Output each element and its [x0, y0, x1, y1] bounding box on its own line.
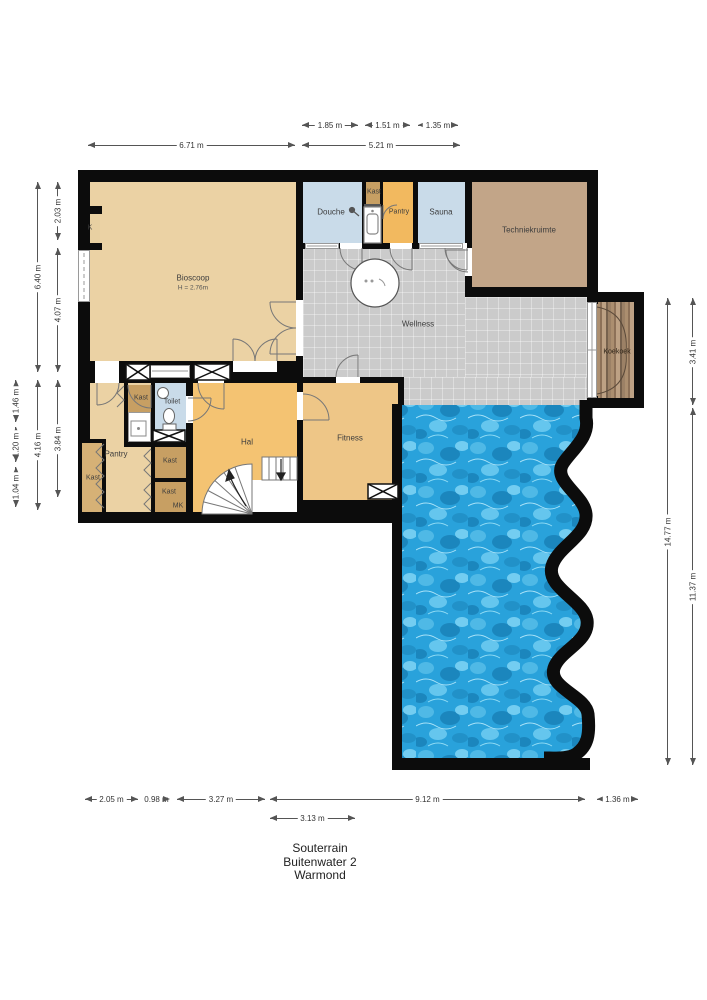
xbox-bioscoop-right	[194, 364, 230, 380]
dim-bottom-0-98: 0.98 m	[143, 799, 170, 800]
xbox-vanity	[153, 430, 185, 442]
label-hal: Hal	[241, 438, 253, 447]
label-kast-mid: Kast	[134, 394, 148, 403]
toilet-bowl	[164, 409, 175, 424]
label-toilet: Toilet	[164, 398, 180, 407]
label-pantry-left: Pantry	[104, 450, 127, 459]
title-city: Warmond	[230, 869, 410, 883]
dim-top-6-71: 6.71 m	[88, 145, 295, 146]
title-address: Buitenwater 2	[230, 856, 410, 870]
title-floor: Souterrain	[230, 842, 410, 856]
dim-right-14-77: 14.77 m	[667, 298, 668, 765]
label-kast-top: Kast	[367, 188, 381, 197]
sink-unit	[364, 207, 381, 243]
label-koekoek: Koekoek	[603, 348, 630, 357]
title-block: Souterrain Buitenwater 2 Warmond	[230, 842, 410, 883]
label-bioscoop-height: H = 2.76m	[178, 284, 208, 293]
label-techniekruimte: Techniekruimte	[502, 226, 556, 235]
label-bioscoop: Bioscoop	[177, 274, 210, 283]
staircase	[202, 457, 297, 514]
dim-left-6-40: 6.40 m	[37, 182, 38, 372]
label-kast-left: Kast	[86, 474, 100, 483]
label-kast-c1: Kast	[163, 457, 177, 466]
dim-right-3-41: 3.41 m	[692, 298, 693, 405]
dim-right-11-37: 11.37 m	[692, 408, 693, 765]
label-fitness: Fitness	[337, 434, 363, 443]
label-kast-c2: Kast	[162, 488, 176, 497]
dim-left-4-16: 4.16 m	[37, 380, 38, 510]
label-mk: MK	[173, 502, 184, 511]
shower-head	[350, 208, 360, 217]
cabinet-sink	[131, 421, 146, 436]
label-wellness: Wellness	[402, 320, 434, 329]
xbox-bioscoop-left	[126, 364, 150, 380]
dim-top-1-51: 1.51 m	[365, 125, 410, 126]
label-k-closet: K	[88, 224, 93, 233]
dim-left-1-04: 1.04 m	[15, 467, 16, 507]
toilet-fixtures	[158, 388, 177, 431]
label-pantry-top: Pantry	[389, 208, 409, 217]
dim-top-5-21: 5.21 m	[302, 145, 460, 146]
swimming-pool	[392, 400, 590, 770]
floorplan-page: Bioscoop H = 2.76m Douche Kast Pantry Sa…	[0, 0, 707, 1000]
pool-wall-bottom	[392, 758, 590, 770]
folding-door-zigzags	[96, 386, 151, 511]
pool-wall-left	[392, 404, 402, 764]
window-lines	[84, 246, 597, 397]
dim-bottom-3-27: 3.27 m	[177, 799, 265, 800]
label-douche: Douche	[317, 208, 345, 217]
dim-left-3-84: 3.84 m	[57, 380, 58, 497]
whirlpool-tub	[351, 259, 399, 307]
stair-winder	[202, 464, 252, 514]
dim-top-1-85: 1.85 m	[302, 125, 358, 126]
dim-top-1-35: 1.35 m	[418, 125, 458, 126]
dim-left-2-03: 2.03 m	[57, 182, 58, 240]
dim-bottom-1-36: 1.36 m	[597, 799, 638, 800]
label-sauna: Sauna	[429, 208, 452, 217]
dim-bottom-2-05: 2.05 m	[85, 799, 138, 800]
dim-left-1-46: 1.46 m	[15, 380, 16, 422]
dim-left-4-07: 4.07 m	[57, 248, 58, 372]
toilet-tank	[163, 424, 176, 430]
dim-bottom-3-13: 3.13 m	[270, 818, 355, 819]
dim-bottom-9-12: 9.12 m	[270, 799, 585, 800]
door-arcs	[97, 205, 468, 421]
xbox-fitness	[368, 484, 398, 499]
dim-left-1-20: 1.20 m	[15, 427, 16, 462]
